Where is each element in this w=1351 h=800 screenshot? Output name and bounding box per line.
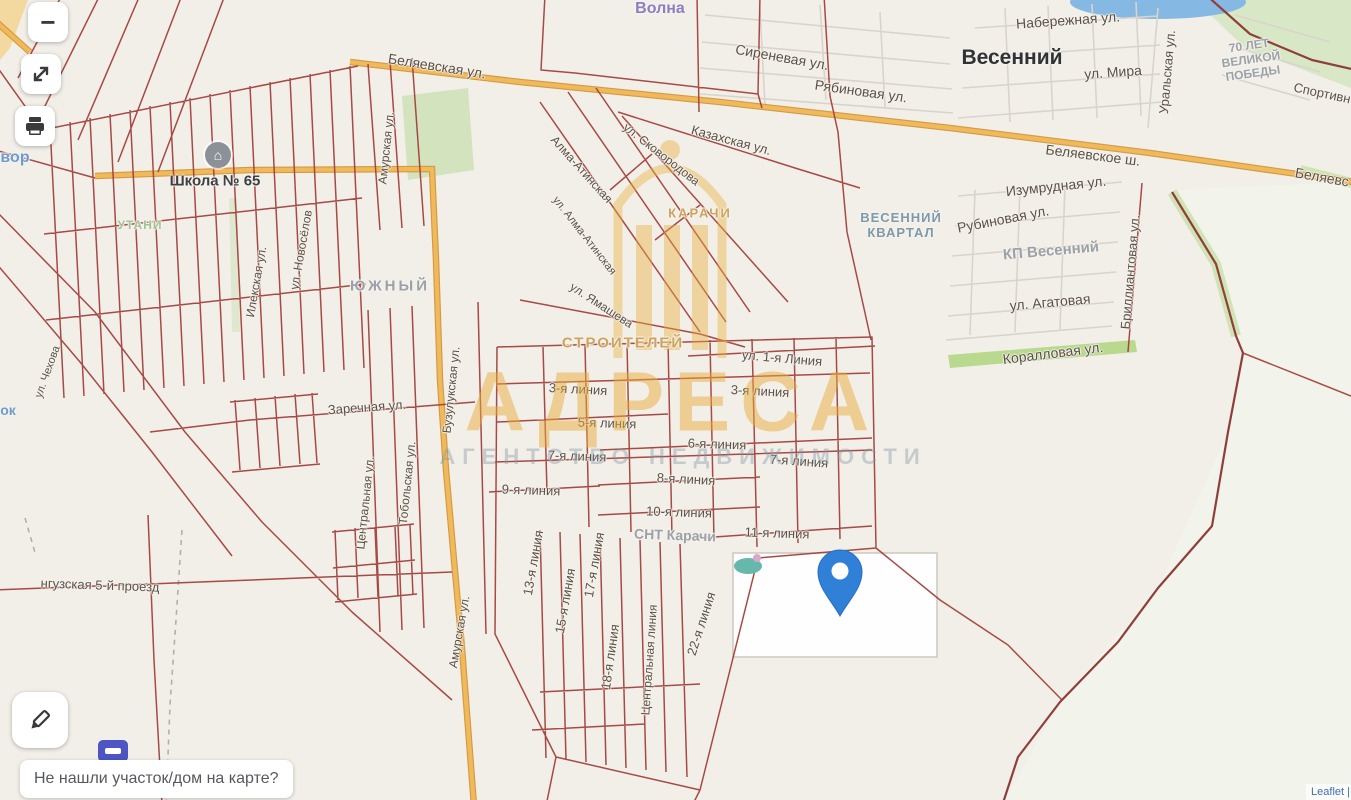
diagonal-resize-arrows-icon <box>30 63 52 85</box>
map-roads-layer <box>0 0 1351 800</box>
small-marker-dot <box>753 554 761 562</box>
area-right-fields <box>1002 182 1351 800</box>
leaflet-attribution[interactable]: Leaflet | <box>1306 784 1351 800</box>
edit-button[interactable] <box>12 692 68 748</box>
zoom-out-button[interactable]: − <box>28 2 68 42</box>
area-green-korallovaya <box>948 340 1137 368</box>
printer-icon <box>23 114 47 138</box>
minus-icon: − <box>40 7 55 38</box>
map-pin-icon[interactable] <box>812 544 868 620</box>
fullscreen-button[interactable] <box>21 54 61 94</box>
map-canvas[interactable]: ВолнаВесеннийНабережная ул.ул. МираУраль… <box>0 0 1351 800</box>
not-found-question-bar[interactable]: Не нашли участок/дом на карте? <box>20 760 293 798</box>
pencil-icon <box>26 706 54 734</box>
not-found-question-text: Не нашли участок/дом на карте? <box>34 770 279 788</box>
school-poi-icon: ⌂ <box>205 142 231 168</box>
bus-stop-icon <box>98 740 128 762</box>
print-button[interactable] <box>15 106 55 146</box>
